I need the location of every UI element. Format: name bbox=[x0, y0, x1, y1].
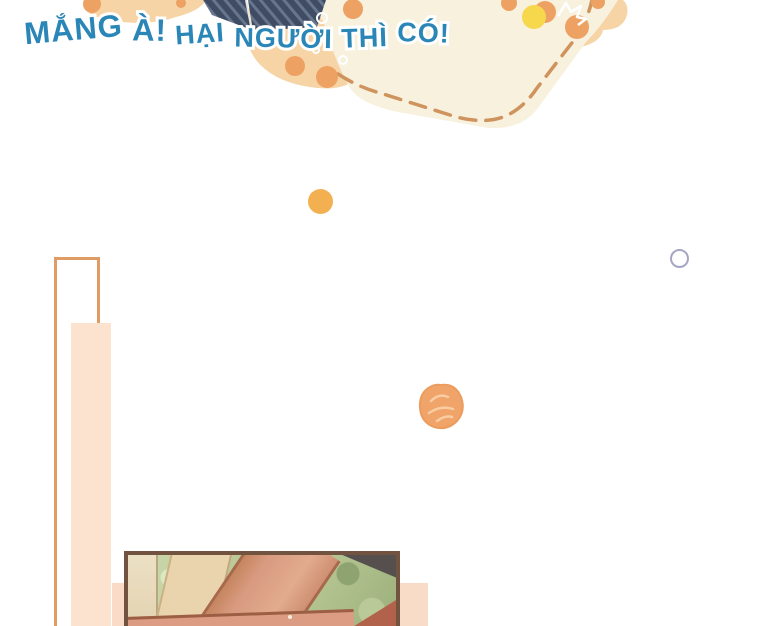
speech-word: THÌ bbox=[341, 22, 389, 55]
yellow-dot bbox=[522, 5, 546, 29]
orange-dot bbox=[285, 56, 305, 76]
filled-tall-rect bbox=[71, 323, 111, 626]
orange-dot-mid bbox=[308, 189, 333, 214]
comic-panel bbox=[124, 551, 400, 626]
small-ring-icon bbox=[670, 249, 689, 268]
panel-art-highlight-speck bbox=[288, 615, 292, 619]
speech-word: À! bbox=[132, 12, 167, 49]
speech-text: MẮNG À! HẠI NGƯỜI THÌ CÓ! bbox=[24, 0, 465, 42]
speech-word: NGƯỜI bbox=[234, 22, 333, 55]
comic-page: MẮNG À! HẠI NGƯỜI THÌ CÓ! bbox=[0, 0, 760, 626]
scribble-circle bbox=[415, 381, 467, 433]
speech-word: HẠI bbox=[175, 17, 227, 51]
orange-dot bbox=[316, 66, 338, 88]
speech-word: CÓ! bbox=[397, 17, 451, 50]
